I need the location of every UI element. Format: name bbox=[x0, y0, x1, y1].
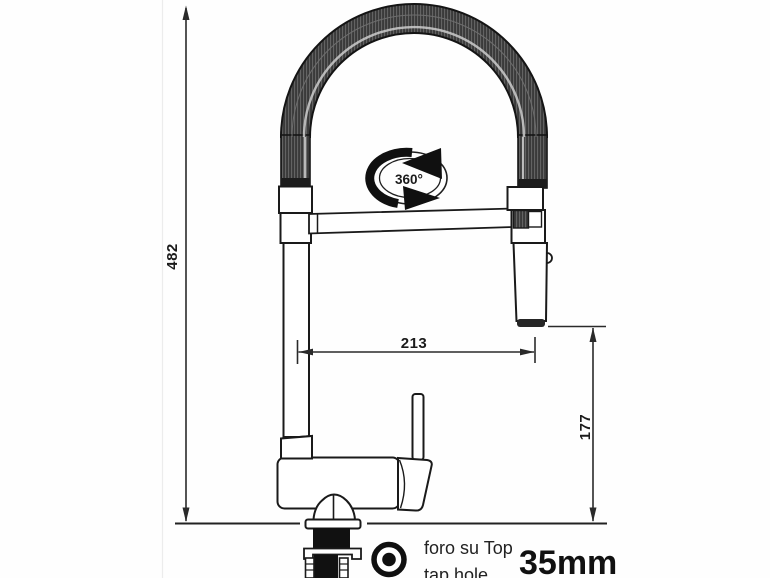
mounting-stud-left bbox=[306, 558, 315, 578]
riser-tube bbox=[284, 243, 310, 437]
mounting-stud-right bbox=[340, 558, 349, 578]
dimension-482-label: 482 bbox=[164, 243, 181, 270]
spray-head bbox=[508, 187, 553, 327]
support-arm-bar bbox=[309, 209, 513, 234]
lever-handle-base bbox=[398, 458, 432, 511]
spray-head-collar bbox=[508, 187, 544, 210]
hole-note-line2: tap hole bbox=[424, 565, 488, 578]
support-arm bbox=[309, 209, 513, 234]
threaded-shank-upper bbox=[313, 528, 350, 549]
riser-collar-lower bbox=[281, 213, 312, 243]
hole-note-line1: foro su Top bbox=[424, 538, 513, 558]
rotation-360-icon: 360° bbox=[370, 148, 447, 210]
faucet-technical-drawing: 360° bbox=[0, 0, 770, 578]
faucet-technical-drawing-page: 360° bbox=[0, 0, 770, 578]
spray-head-body bbox=[514, 243, 548, 321]
dim-482-arrow-top bbox=[183, 6, 190, 21]
tap-hole-annotation: foro su Top tap hole 35mm bbox=[374, 538, 617, 578]
lever-handle-rod bbox=[413, 394, 424, 460]
base-flange bbox=[306, 520, 361, 529]
dimension-overall-height: 482 bbox=[164, 6, 190, 523]
tap-hole-target-icon bbox=[374, 545, 404, 575]
spray-outlet-tip bbox=[517, 319, 545, 327]
dim-213-arrow-right bbox=[520, 349, 535, 356]
coil-band bbox=[281, 4, 547, 137]
body-inlet-joint bbox=[281, 436, 312, 459]
dimension-outlet-height: 177 bbox=[548, 327, 606, 523]
holder-fitting-cap bbox=[529, 212, 542, 228]
dim-177-arrow-top bbox=[590, 328, 597, 343]
threaded-shank-lower bbox=[314, 555, 338, 578]
riser-pipe bbox=[279, 187, 312, 459]
holder-knurled-fitting bbox=[514, 211, 529, 229]
rotation-label: 360° bbox=[395, 172, 423, 187]
dimension-177-label: 177 bbox=[577, 414, 594, 441]
dimension-213-label: 213 bbox=[401, 335, 428, 352]
hole-size-label: 35mm bbox=[519, 544, 617, 578]
dim-177-arrow-bottom bbox=[590, 508, 597, 523]
riser-collar-upper bbox=[279, 187, 312, 214]
dimension-spout-reach: 213 bbox=[298, 335, 536, 364]
dim-482-arrow-bottom bbox=[183, 508, 190, 523]
